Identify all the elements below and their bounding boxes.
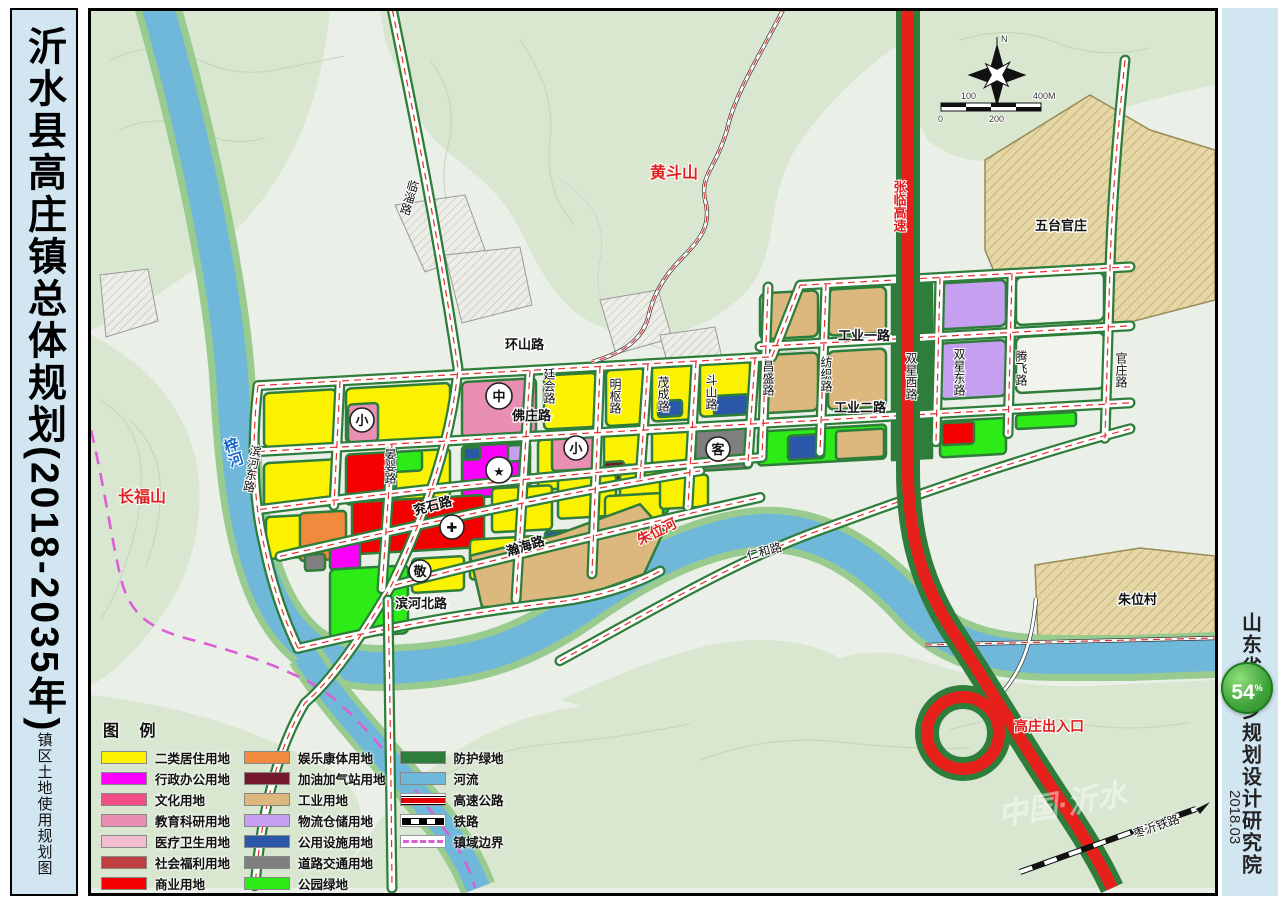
legend-swatch (244, 814, 290, 827)
legend-item: 工业用地 (244, 789, 386, 810)
legend-title: 图 例 (103, 717, 501, 741)
primary-school-marker: 小 (350, 408, 374, 432)
legend-item: 河流 (400, 768, 504, 789)
plan-title: 沂水县高庄镇总体规划(2018-2035年) (25, 26, 64, 733)
label-zhuweicun: 朱位村 (1117, 592, 1157, 607)
svg-text:中: 中 (492, 389, 505, 404)
legend-swatch (244, 751, 290, 764)
label-road-fangzhi: 纺织路 (819, 356, 833, 393)
label-road-tengfei: 腾飞路 (1014, 349, 1028, 387)
planning-map-sheet: 沂水县高庄镇总体规划(2018-2035年) 17 镇区土地使用规划图 (0, 0, 1284, 904)
label-road-shuangxingdong: 双星东路 (952, 348, 966, 397)
legend-swatch (101, 877, 147, 890)
railway-symbol (400, 814, 446, 827)
legend-col-1: 二类居住用地 行政办公用地 文化用地 教育科研用地 医疗卫生用地 社会福利用地 … (101, 747, 230, 894)
primary-school-marker: 小 (564, 436, 588, 460)
plan-date: 2018.03 (1226, 790, 1243, 844)
expressway-symbol (400, 793, 446, 806)
legend-swatch (244, 835, 290, 848)
compass-north-label: N (1001, 34, 1008, 44)
legend-swatch (400, 772, 446, 785)
svg-text:★: ★ (493, 464, 505, 479)
scale-0: 0 (938, 114, 943, 124)
legend-swatch (244, 772, 290, 785)
legend-item: 文化用地 (101, 789, 230, 810)
label-road-changsheng: 昌盛路 (761, 360, 775, 397)
legend-item: 高速公路 (400, 789, 504, 810)
legend-item: 防护绿地 (400, 747, 504, 768)
government-marker: ★ (486, 457, 512, 483)
legend-item: 医疗卫生用地 (101, 831, 230, 852)
legend-swatch (244, 793, 290, 806)
label-road-maocheng: 茂成路 (656, 376, 670, 413)
map: N 100 400M 0 200 小 中 小 ★ ✚ 客 敬 (88, 8, 1218, 896)
legend: 图 例 二类居住用地 行政办公用地 文化用地 教育科研用地 医疗卫生用地 社会福… (101, 717, 501, 894)
legend-item: 娱乐康体用地 (244, 747, 386, 768)
label-road-mingshu: 明枢路 (608, 378, 622, 415)
legend-item: 二类居住用地 (101, 747, 230, 768)
progress-badge[interactable]: 54% (1221, 662, 1273, 714)
label-road-shuangxingxi: 双星西路 (904, 352, 918, 401)
legend-col-2: 娱乐康体用地 加油加气站用地 工业用地 物流仓储用地 公用设施用地 道路交通用地… (244, 747, 386, 894)
legend-item: 道路交通用地 (244, 852, 386, 873)
legend-item: 行政办公用地 (101, 768, 230, 789)
legend-item: 商业用地 (101, 873, 230, 894)
label-road-binhebei: 滨河北路 (395, 596, 448, 611)
legend-swatch (101, 772, 147, 785)
hospital-marker: ✚ (440, 515, 464, 539)
label-gaozhuang-exit: 高庄出入口 (1014, 718, 1084, 734)
legend-swatch (101, 835, 147, 848)
label-changfushan: 长福山 (118, 487, 166, 506)
legend-swatch (101, 814, 147, 827)
legend-swatch (101, 751, 147, 764)
label-road-tinghui: 廷会路 (542, 368, 556, 405)
left-title-panel: 沂水县高庄镇总体规划(2018-2035年) 17 镇区土地使用规划图 (10, 8, 78, 896)
label-road-huanshan: 环山路 (505, 337, 545, 352)
legend-item: 铁路 (400, 810, 504, 831)
legend-col-3: 防护绿地 河流 高速公路 铁路 镇域边界 (400, 747, 504, 894)
legend-item: 镇域边界 (400, 831, 504, 852)
scale-200: 200 (989, 114, 1004, 124)
legend-swatch (101, 856, 147, 869)
label-road-yanying: 晏婴路 (383, 448, 397, 485)
badge-value: 54 (1231, 681, 1254, 704)
legend-item: 教育科研用地 (101, 810, 230, 831)
legend-swatch (400, 751, 446, 764)
middle-school-marker: 中 (486, 383, 512, 409)
legend-item: 公用设施用地 (244, 831, 386, 852)
legend-item: 加油加气站用地 (244, 768, 386, 789)
nursing-home-marker: 敬 (409, 560, 431, 582)
svg-text:小: 小 (569, 441, 582, 456)
legend-item: 物流仓储用地 (244, 810, 386, 831)
label-road-guanzhuang: 官庄路 (1114, 351, 1128, 389)
sheet-subtitle: 镇区土地使用规划图 (34, 732, 55, 876)
badge-suffix: % (1255, 683, 1263, 693)
legend-swatch (244, 877, 290, 890)
bus-station-marker: 客 (706, 437, 730, 461)
label-zhanglin-expressway: 张临高速 (892, 180, 907, 233)
scale-400: 400M (1033, 91, 1056, 101)
svg-text:小: 小 (355, 413, 368, 428)
legend-item: 公园绿地 (244, 873, 386, 894)
svg-text:✚: ✚ (447, 520, 458, 535)
boundary-symbol (400, 835, 446, 848)
right-credits-panel: 山东省城乡规划设计研究院 2018.03 (1222, 8, 1278, 896)
scale-100: 100 (961, 91, 976, 101)
legend-swatch (101, 793, 147, 806)
label-wutaiguanzhuang: 五台官庄 (1035, 218, 1087, 233)
label-road-doushan: 斗山路 (704, 374, 718, 411)
label-road-gongye1: 工业一路 (838, 328, 891, 343)
legend-swatch (244, 856, 290, 869)
svg-text:敬: 敬 (412, 564, 427, 579)
label-huangdoushan: 黄斗山 (650, 163, 698, 182)
legend-item: 社会福利用地 (101, 852, 230, 873)
label-road-gongye2: 工业二路 (834, 400, 887, 415)
page-number: 17 (12, 687, 76, 704)
label-road-fozhuang: 佛庄路 (511, 408, 552, 423)
svg-text:客: 客 (711, 442, 725, 457)
